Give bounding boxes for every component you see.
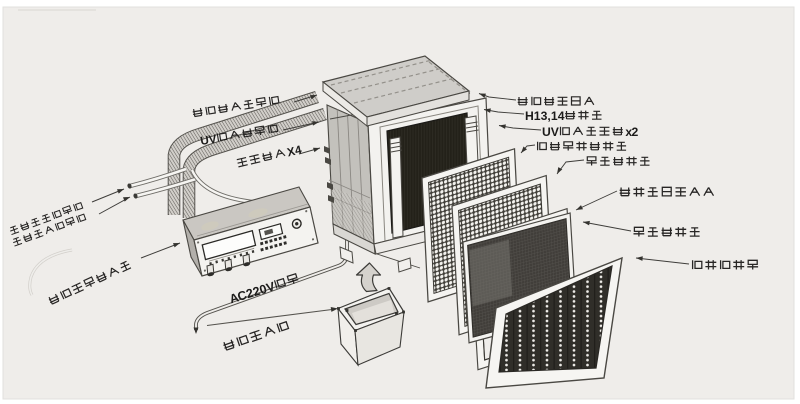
svg-text:U: U — [542, 125, 551, 139]
svg-text:2: 2 — [632, 125, 639, 139]
svg-text:H: H — [525, 109, 534, 123]
svg-text:4: 4 — [558, 109, 565, 123]
svg-text:V: V — [551, 125, 560, 139]
